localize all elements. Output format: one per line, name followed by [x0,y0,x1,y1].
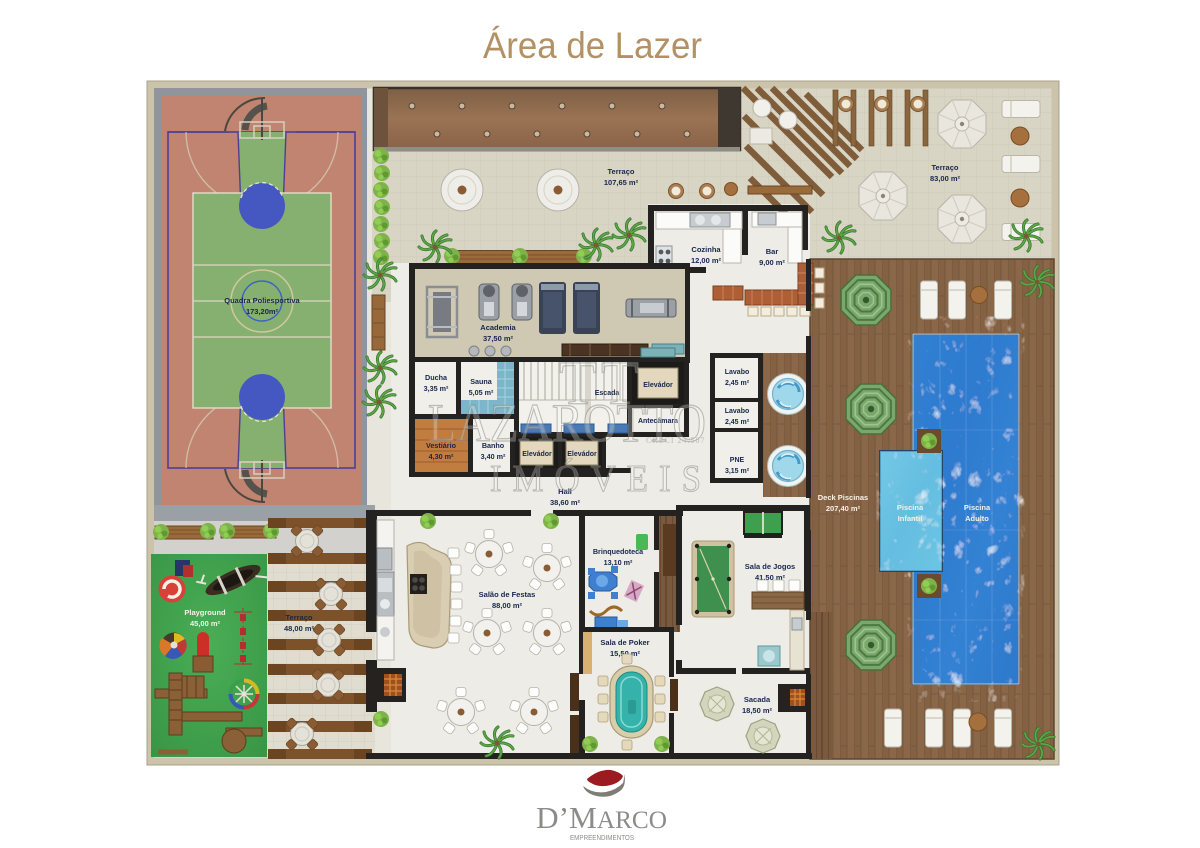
svg-text:Sauna: Sauna [470,377,493,386]
svg-text:CRECI 24.507: CRECI 24.507 [646,436,706,445]
svg-text:Ducha: Ducha [425,373,448,382]
svg-text:Piscina: Piscina [964,503,991,512]
svg-text:Sala de Poker: Sala de Poker [600,638,649,647]
svg-text:88,00 m²: 88,00 m² [492,601,523,610]
svg-text:EMPREENDIMENTOS: EMPREENDIMENTOS [570,835,634,842]
svg-text:PNE: PNE [730,457,745,464]
svg-text:107,65 m²: 107,65 m² [604,178,639,187]
svg-text:Infantil: Infantil [898,514,923,523]
svg-text:Lavabo: Lavabo [725,408,750,415]
svg-text:Terraço: Terraço [932,163,959,172]
svg-text:37,50 m²: 37,50 m² [483,334,514,343]
svg-text:207,40 m²: 207,40 m² [826,504,861,513]
svg-text:2,45 m²: 2,45 m² [725,419,750,426]
svg-text:12,00 m²: 12,00 m² [691,256,722,265]
svg-text:Lavabo: Lavabo [725,369,750,376]
svg-text:Quadra Poliesportiva: Quadra Poliesportiva [224,296,300,305]
svg-text:Adulto: Adulto [965,514,989,523]
svg-text:Salão de Festas: Salão de Festas [479,590,536,599]
svg-text:Cozinha: Cozinha [691,245,721,254]
svg-text:Deck Piscinas: Deck Piscinas [818,493,868,502]
svg-text:18,50 m²: 18,50 m² [742,706,773,715]
svg-text:83,00 m²: 83,00 m² [930,174,961,183]
svg-text:3,15 m²: 3,15 m² [725,468,750,475]
svg-text:45,00 m²: 45,00 m² [190,619,221,628]
svg-text:Terraço: Terraço [286,613,313,622]
svg-text:Elevádor: Elevádor [643,382,673,389]
svg-text:48,00 m²: 48,00 m² [284,624,315,633]
svg-text:4,30 m²: 4,30 m² [429,452,454,461]
svg-text:Academia: Academia [480,323,516,332]
svg-text:Sacada: Sacada [744,695,771,704]
svg-text:9,00 m²: 9,00 m² [759,258,785,267]
svg-text:Bar: Bar [766,247,779,256]
svg-text:IMÓVEIS: IMÓVEIS [490,458,712,500]
svg-text:2,45 m²: 2,45 m² [725,380,750,387]
svg-text:3,35 m²: 3,35 m² [424,384,449,393]
svg-text:13,10 m²: 13,10 m² [604,558,633,567]
svg-text:Sala de Jogos: Sala de Jogos [745,562,795,571]
svg-text:173,20m²: 173,20m² [246,307,279,316]
svg-text:Área de Lazer: Área de Lazer [483,25,702,66]
svg-text:Piscina: Piscina [897,503,924,512]
svg-text:Terraço: Terraço [608,167,635,176]
svg-text:Playground: Playground [184,608,226,617]
